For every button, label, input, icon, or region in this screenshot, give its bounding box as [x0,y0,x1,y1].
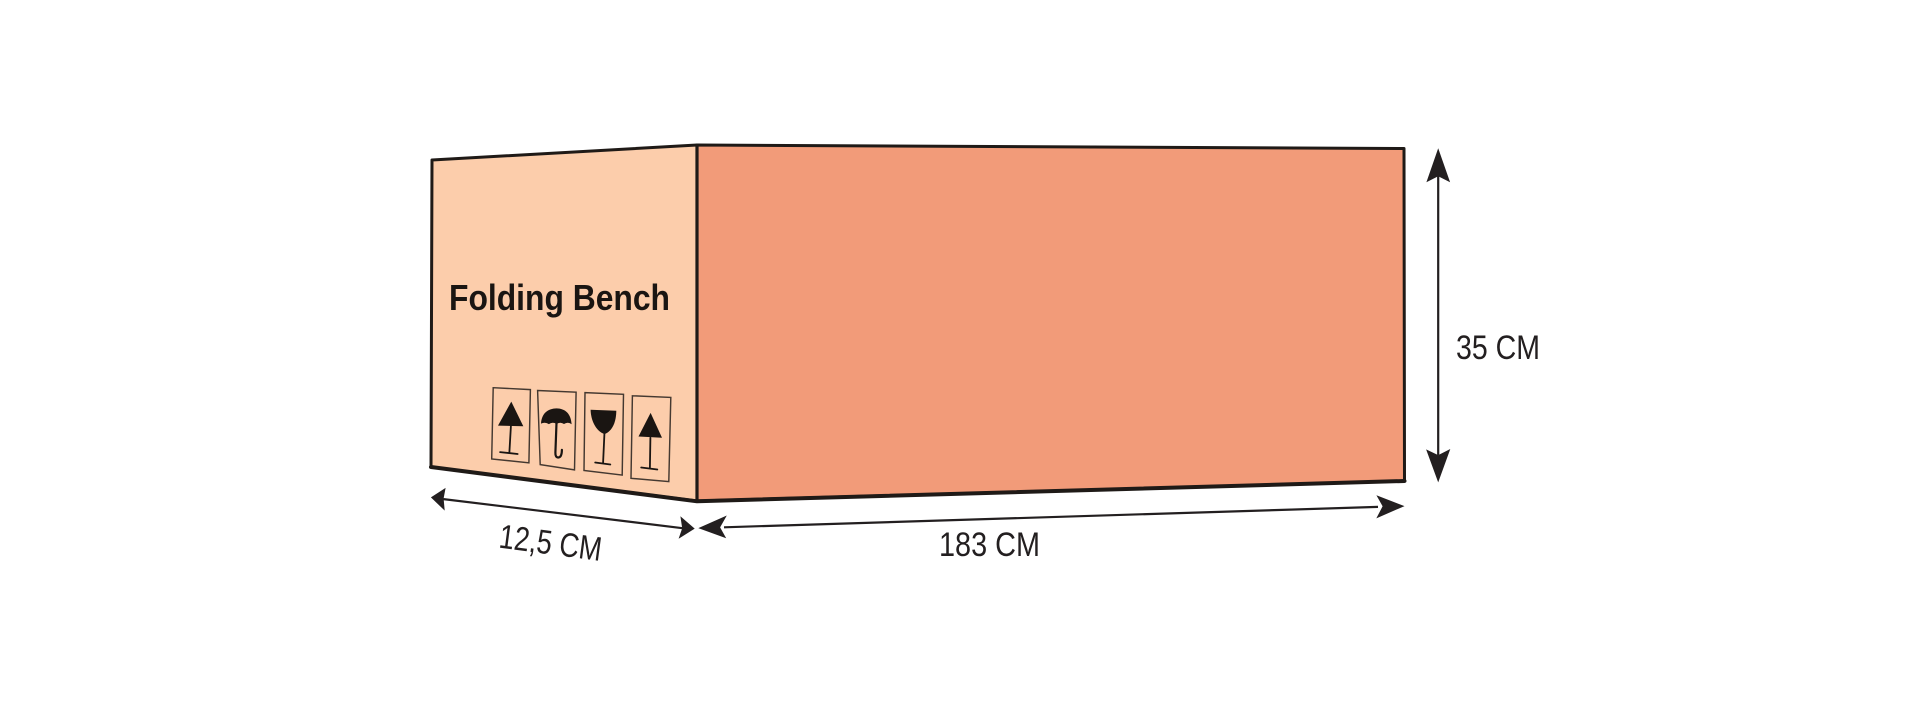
svg-text:35 CM: 35 CM [1456,329,1540,367]
svg-text:Folding Bench: Folding Bench [449,277,670,318]
svg-text:183 CM: 183 CM [939,526,1040,564]
